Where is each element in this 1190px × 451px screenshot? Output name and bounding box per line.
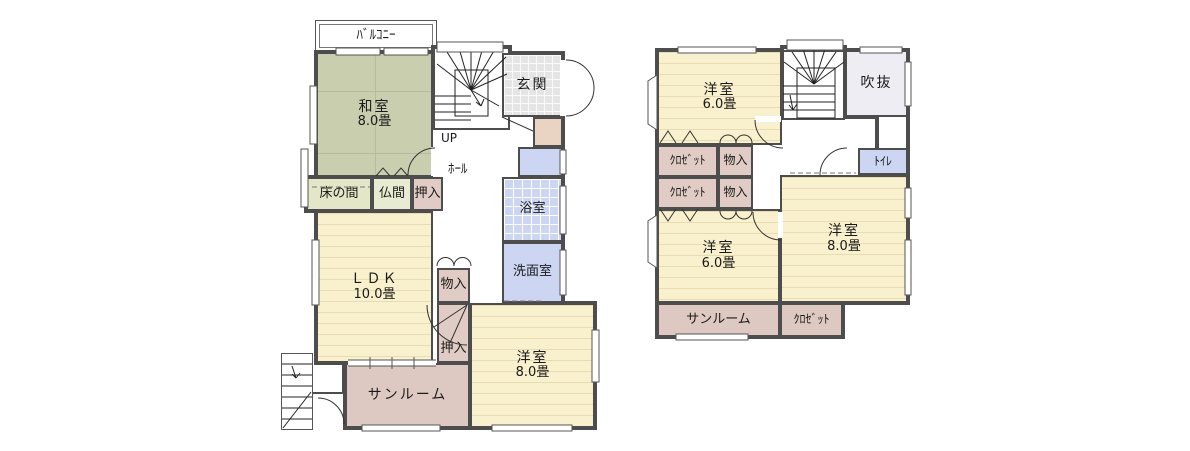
yoshitsu-1f-size: 8.0畳: [516, 366, 550, 381]
toilet-1f: [518, 147, 563, 177]
oshiire-upper-label: 押入: [414, 187, 440, 202]
sunroom-1f-label: サンルーム: [368, 387, 448, 403]
closet-monoire-1f: 物入: [437, 268, 470, 303]
porch-notch: [313, 363, 344, 394]
shoe-cabinet: [533, 117, 563, 147]
plan-detail-overlay: [0, 0, 1190, 451]
closet-2f-row1: ｸﾛｾﾞｯﾄ: [657, 145, 718, 177]
room-yoshitsu-2f-top: 洋室 6.0畳: [657, 50, 782, 145]
room-genkan: 玄関: [502, 53, 563, 117]
stairs-up-label: UP: [441, 131, 457, 145]
yoshitsu-2f-top-label: 洋室: [704, 82, 736, 98]
yoshitsu-1f-label: 洋室: [517, 350, 549, 366]
yoshitsu-2f-right-size: 8.0畳: [827, 240, 861, 255]
monoire-1f-label: 物入: [440, 278, 466, 293]
balcony-label: ﾊﾞﾙｺﾆｰ: [357, 29, 396, 44]
closet-oshiire-upper: 押入: [412, 177, 443, 211]
room-sunroom-2f: サンルーム: [657, 303, 780, 337]
oshiire-lower-label: 押入: [440, 342, 466, 357]
void-label: 吹抜: [861, 75, 893, 91]
void-wall: [845, 117, 877, 148]
closet-2f-row2: ｸﾛｾﾞｯﾄ: [657, 177, 718, 209]
room-tokonoma: 床の間: [306, 177, 372, 211]
ldk-label: ＬＤＫ: [351, 271, 399, 287]
room-bath: 浴室: [502, 177, 563, 242]
floor-plan-canvas: ﾊﾞﾙｺﾆｰ 和室 8.0畳 玄関 浴室 洗面室 床の間 仏間 押入 ＬＤＫ 1…: [0, 0, 1190, 451]
monoire-2f-row1: 物入: [718, 145, 753, 177]
washitsu-size: 8.0畳: [358, 115, 392, 130]
room-washitsu: 和室 8.0畳: [316, 52, 433, 177]
room-sunroom-1f: サンルーム: [345, 363, 470, 428]
closet-row1-label: ｸﾛｾﾞｯﾄ: [669, 154, 705, 168]
room-butsuma: 仏間: [372, 177, 412, 211]
room-ldk: ＬＤＫ 10.0畳: [316, 211, 433, 363]
tokonoma-label: 床の間: [319, 187, 358, 202]
monoire-row2-label: 物入: [723, 186, 747, 200]
exterior-stairs: [281, 353, 313, 430]
room-yoshitsu-2f-mid: 洋室 6.0畳: [657, 209, 780, 303]
ldk-size: 10.0畳: [354, 288, 396, 303]
staircase-2f: [782, 50, 845, 120]
genkan-label: 玄関: [517, 77, 549, 93]
monoire-2f-row2: 物入: [718, 177, 753, 209]
toilet-label: ﾄｲﾚ: [874, 155, 892, 169]
room-toilet-2f: ﾄｲﾚ: [858, 148, 908, 175]
room-yoshitsu-1f: 洋室 8.0畳: [470, 303, 595, 428]
yoshitsu-2f-top-size: 6.0畳: [703, 98, 737, 113]
balcony: ﾊﾞﾙｺﾆｰ: [315, 20, 437, 52]
washitsu-label: 和室: [359, 99, 391, 115]
bay-windows-2f: [648, 75, 657, 268]
hall-label: ﾎｰﾙ: [448, 158, 468, 177]
closet-bottom-label: ｸﾛｾﾞｯﾄ: [793, 313, 829, 327]
closet-oshiire-lower: 押入: [437, 303, 470, 363]
bath-label: 浴室: [519, 202, 545, 217]
yoshitsu-2f-mid-label: 洋室: [703, 240, 735, 256]
staircase-1f: [433, 47, 510, 130]
yoshitsu-2f-mid-size: 6.0畳: [702, 257, 736, 272]
monoire-row1-label: 物入: [723, 154, 747, 168]
washroom-label: 洗面室: [513, 265, 552, 280]
room-washroom: 洗面室: [502, 242, 563, 303]
yoshitsu-2f-right-label: 洋室: [828, 223, 860, 239]
closet-row2-label: ｸﾛｾﾞｯﾄ: [669, 186, 705, 200]
butsuma-label: 仏間: [379, 187, 405, 202]
closet-2f-bottom: ｸﾛｾﾞｯﾄ: [780, 303, 843, 337]
room-void: 吹抜: [845, 50, 908, 117]
room-yoshitsu-2f-right: 洋室 8.0畳: [780, 175, 908, 303]
sunroom-2f-label: サンルーム: [686, 313, 751, 328]
